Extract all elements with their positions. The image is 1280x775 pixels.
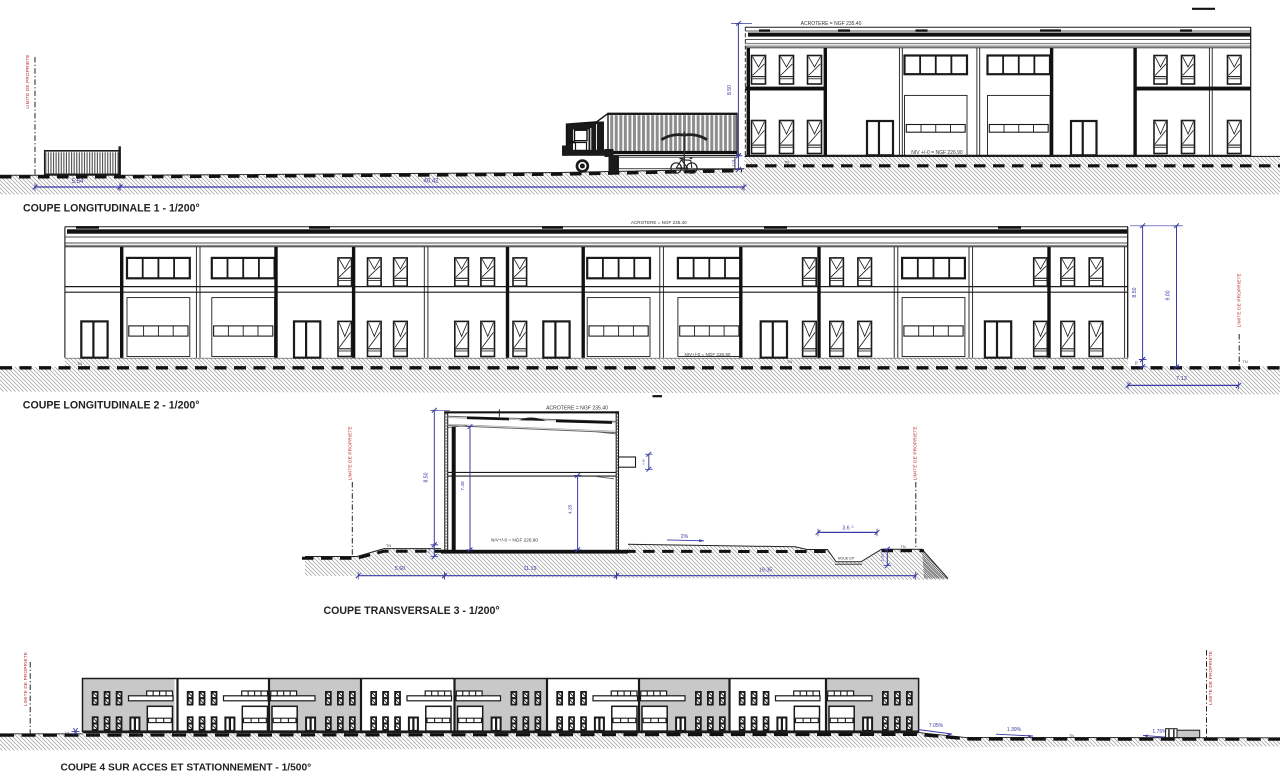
svg-text:7.49: 7.49 <box>460 481 466 491</box>
svg-text:TN: TN <box>901 545 906 549</box>
svg-text:TN: TN <box>784 161 789 165</box>
svg-text:19.35: 19.35 <box>759 567 773 573</box>
svg-text:TN: TN <box>1038 162 1043 166</box>
svg-text:1.03: 1.03 <box>879 553 884 562</box>
svg-text:NIV +/-0 = NGF 226.90: NIV +/-0 = NGF 226.90 <box>911 150 963 156</box>
svg-text:COUPE LONGITUDINALE 2 - 1/200°: COUPE LONGITUDINALE 2 - 1/200° <box>23 400 200 412</box>
svg-text:ACROTERE = NGF 235.40: ACROTERE = NGF 235.40 <box>801 21 862 27</box>
svg-text:3.6: 3.6 <box>842 526 849 532</box>
svg-text:1.01: 1.01 <box>730 158 735 167</box>
svg-text:COUPE TRANSVERSALE 3 - 1/200°: COUPE TRANSVERSALE 3 - 1/200° <box>324 605 500 617</box>
svg-text:7.12: 7.12 <box>1176 376 1187 382</box>
svg-text:0: 0 <box>852 525 854 529</box>
svg-text:LIMITE DE PROPRIETE: LIMITE DE PROPRIETE <box>348 426 353 480</box>
svg-text:TN: TN <box>787 360 792 364</box>
svg-text:TN: TN <box>1069 734 1074 738</box>
svg-text:8.50: 8.50 <box>1132 287 1138 297</box>
svg-text:NIV+/-0 = NGF 226.90: NIV+/-0 = NGF 226.90 <box>685 352 731 357</box>
svg-text:COUPE LONGITUDINALE 1 - 1/200°: COUPE LONGITUDINALE 1 - 1/200° <box>23 203 200 215</box>
svg-text:ACROTERE = NGF 235.40: ACROTERE = NGF 235.40 <box>631 220 687 225</box>
svg-text:LIMITE DE PROPRIETE: LIMITE DE PROPRIETE <box>1236 273 1241 327</box>
svg-text:0.4: 0.4 <box>427 549 431 554</box>
svg-text:5.54: 5.54 <box>72 179 84 185</box>
svg-text:LIMITE DE PROPRIETE: LIMITE DE PROPRIETE <box>25 54 30 108</box>
svg-text:TN: TN <box>1243 360 1248 364</box>
svg-text:TN: TN <box>137 734 142 738</box>
svg-text:NIV+/-0 = NGF 226.90: NIV+/-0 = NGF 226.90 <box>491 537 538 542</box>
svg-text:40.42: 40.42 <box>423 179 439 185</box>
svg-text:7.05%: 7.05% <box>929 723 944 729</box>
svg-text:2.4: 2.4 <box>65 731 70 735</box>
svg-text:2%: 2% <box>681 534 689 540</box>
svg-text:0.60: 0.60 <box>642 459 646 465</box>
svg-text:NOUE EP: NOUE EP <box>838 557 855 561</box>
svg-text:TN: TN <box>77 362 82 366</box>
svg-text:8.50: 8.50 <box>727 85 733 95</box>
svg-text:LIMITE DE PROPRIETE: LIMITE DE PROPRIETE <box>1208 651 1213 705</box>
svg-text:COUPE 4 SUR ACCES ET STATIONNE: COUPE 4 SUR ACCES ET STATIONNEMENT - 1/5… <box>61 763 312 774</box>
svg-text:TN: TN <box>386 544 391 548</box>
svg-text:1.39%: 1.39% <box>1007 727 1022 733</box>
svg-text:9.00: 9.00 <box>1166 290 1172 300</box>
svg-text:LIMITE DE PROPRIETE: LIMITE DE PROPRIETE <box>913 426 918 480</box>
svg-text:1.75%: 1.75% <box>1152 729 1167 735</box>
svg-text:5.60: 5.60 <box>395 566 406 572</box>
svg-text:8.50: 8.50 <box>424 472 430 482</box>
svg-text:50: 50 <box>1135 361 1139 365</box>
svg-text:220: 220 <box>590 165 594 171</box>
svg-text:ACROTERE = NGF 235.40: ACROTERE = NGF 235.40 <box>546 405 608 411</box>
svg-text:LIMITE DE PROPRIETE: LIMITE DE PROPRIETE <box>23 652 28 706</box>
svg-text:4.35: 4.35 <box>568 504 574 514</box>
svg-text:11.19: 11.19 <box>523 566 536 572</box>
